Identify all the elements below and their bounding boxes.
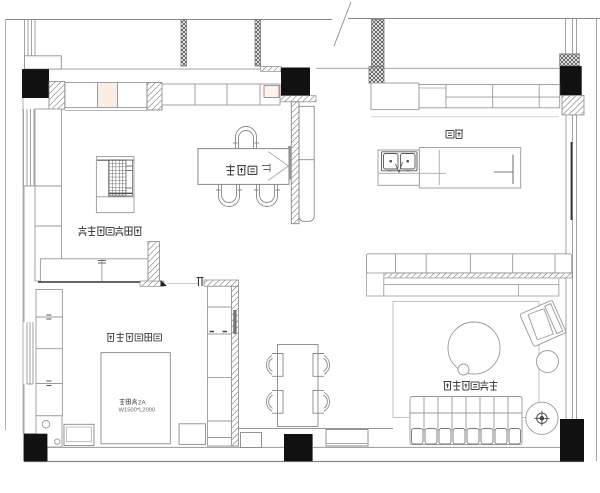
svg-text:2A: 2A — [138, 400, 146, 407]
svg-text:W1500*L2000: W1500*L2000 — [119, 408, 156, 414]
